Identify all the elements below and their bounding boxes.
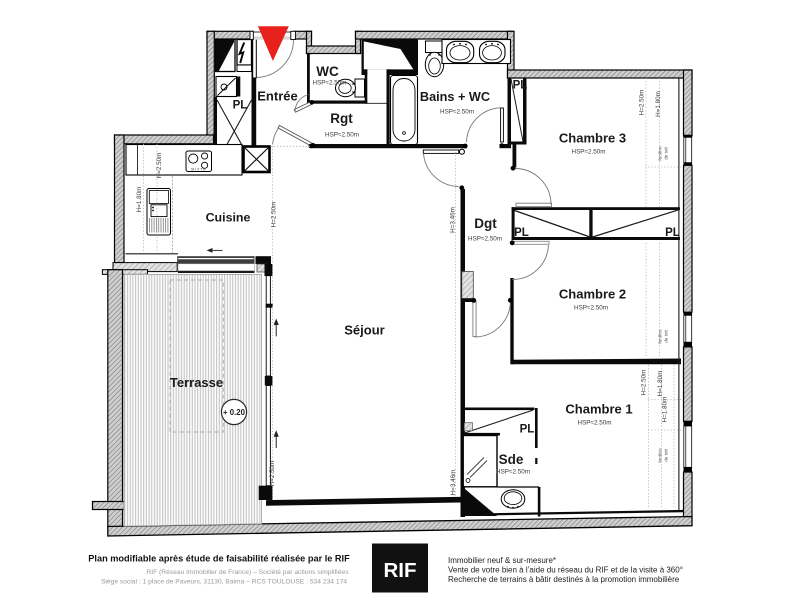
svg-text:H=1.80m: H=1.80m xyxy=(657,371,664,397)
svg-text:HSP≈2.50m: HSP≈2.50m xyxy=(325,132,359,139)
svg-text:HSP≈2.50m: HSP≈2.50m xyxy=(440,109,474,116)
svg-text:Dgt: Dgt xyxy=(474,216,497,231)
svg-text:fenêtre: fenêtre xyxy=(658,146,663,161)
svg-text:PL: PL xyxy=(233,100,248,112)
svg-text:Plan modifiable après étude de: Plan modifiable après étude de faisabili… xyxy=(88,554,350,564)
svg-text:Recherche de terrains à bâtir: Recherche de terrains à bâtir destinés à… xyxy=(448,575,680,584)
svg-text:Chambre 2: Chambre 2 xyxy=(559,287,626,302)
svg-text:Entrée: Entrée xyxy=(257,89,297,104)
svg-text:H=2.50m: H=2.50m xyxy=(269,461,276,487)
svg-text:RIF (Réseau Immobilier de Fran: RIF (Réseau Immobilier de France) – Soci… xyxy=(146,569,349,576)
svg-text:H=2.50m: H=2.50m xyxy=(641,370,648,396)
svg-text:WC: WC xyxy=(316,64,339,79)
svg-text:H=2.50m: H=2.50m xyxy=(639,90,646,116)
svg-text:HSP≈2.50m: HSP≈2.50m xyxy=(578,420,612,427)
svg-text:fenêtre: fenêtre xyxy=(658,448,663,463)
svg-text:Terrasse: Terrasse xyxy=(170,375,223,390)
svg-text:fenêtre: fenêtre xyxy=(658,329,663,344)
svg-text:HSP≈2.50m: HSP≈2.50m xyxy=(572,149,606,156)
svg-text:PL: PL xyxy=(514,227,529,239)
svg-text:H=3.46m: H=3.46m xyxy=(450,207,457,233)
svg-text:Chambre 1: Chambre 1 xyxy=(565,402,632,417)
svg-text:H=1.80m: H=1.80m xyxy=(655,91,662,117)
svg-text:HSP≈2.50m: HSP≈2.50m xyxy=(313,80,347,87)
svg-text:Chambre 3: Chambre 3 xyxy=(559,131,626,146)
svg-text:+ 0.20: + 0.20 xyxy=(223,408,246,417)
svg-text:HSP≈2.50m: HSP≈2.50m xyxy=(496,469,530,476)
svg-text:Rgt: Rgt xyxy=(330,111,353,126)
svg-text:Bains + WC: Bains + WC xyxy=(420,90,490,104)
svg-text:H=1.80m: H=1.80m xyxy=(662,397,669,423)
svg-text:H=2.50m: H=2.50m xyxy=(271,202,278,228)
svg-text:Siège social : 1 place de Pave: Siège social : 1 place de Paveurs, 31130… xyxy=(101,579,347,586)
svg-text:H=3.46m: H=3.46m xyxy=(450,470,457,496)
svg-text:Cuisine: Cuisine xyxy=(206,210,251,224)
svg-text:M I X T E: M I X T E xyxy=(191,167,206,171)
svg-text:PL: PL xyxy=(513,80,528,92)
svg-text:Sde: Sde xyxy=(499,452,524,467)
svg-text:de toit: de toit xyxy=(664,449,669,462)
svg-text:Immobilier neuf & sur-mesure*: Immobilier neuf & sur-mesure* xyxy=(448,556,556,565)
svg-text:H=1.80m: H=1.80m xyxy=(136,187,143,213)
svg-text:HSP≈2.50m: HSP≈2.50m xyxy=(574,305,608,312)
svg-text:H=2.50m: H=2.50m xyxy=(156,153,163,179)
svg-text:Séjour: Séjour xyxy=(344,323,384,338)
svg-text:HSP≈2.50m: HSP≈2.50m xyxy=(468,236,502,243)
svg-text:de toit: de toit xyxy=(664,147,669,160)
svg-text:Vente de votre bien à l’aide d: Vente de votre bien à l’aide du réseau d… xyxy=(448,566,683,575)
svg-text:RIF: RIF xyxy=(383,559,416,582)
svg-text:PL: PL xyxy=(665,227,680,239)
svg-text:de toit: de toit xyxy=(664,330,669,343)
svg-text:PL: PL xyxy=(520,424,535,436)
